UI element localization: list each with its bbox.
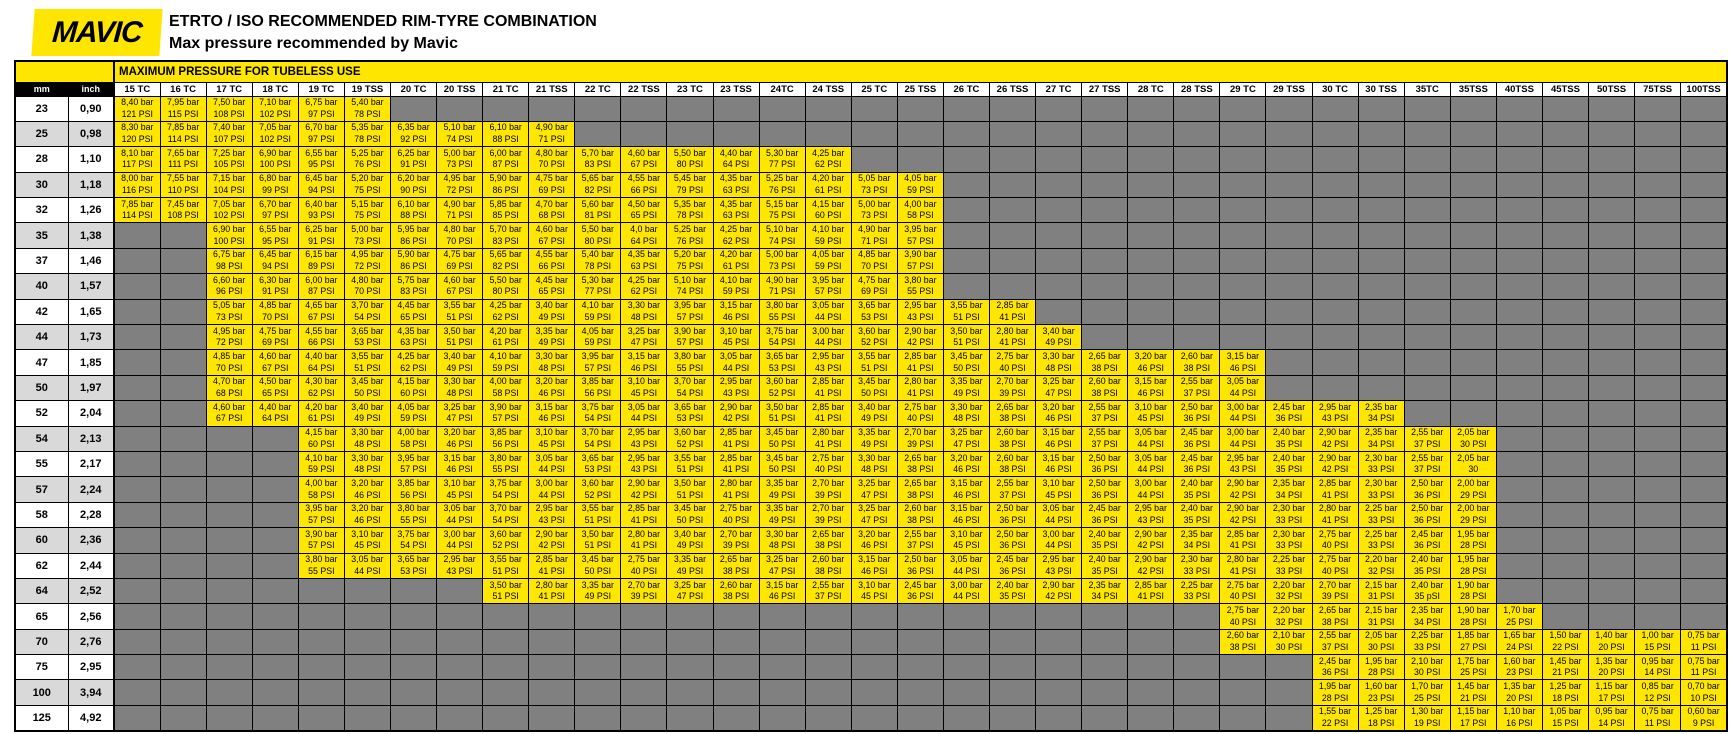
bar-value: 3,60 bar [483, 529, 528, 541]
psi-value: 46 PSI [345, 515, 390, 527]
pressure-cell: 3,25 bar47 PSI [851, 477, 897, 502]
psi-value: 44 PSI [944, 591, 989, 603]
psi-value: 74 PSI [760, 236, 805, 248]
psi-value: 55 PSI [898, 286, 943, 298]
empty-cell [1496, 248, 1542, 273]
empty-cell [1312, 375, 1358, 400]
pressure-cell: 6,00 bar87 PSI [298, 274, 344, 299]
empty-cell [160, 680, 206, 705]
bar-value: 3,90 bar [667, 326, 712, 338]
psi-value: 38 PSI [990, 413, 1035, 425]
pressure-cell: 2,15 bar31 PSI [1358, 604, 1404, 629]
pressure-cell: 4,25 bar62 PSI [805, 147, 851, 172]
bar-value: 3,05 bar [621, 402, 666, 414]
empty-cell [1358, 172, 1404, 197]
empty-cell [621, 680, 667, 705]
bar-value: 2,70 bar [806, 478, 851, 490]
pressure-cell: 2,85 bar41 PSI [897, 350, 943, 375]
empty-cell [713, 121, 759, 146]
pressure-cell: 2,85 bar41 PSI [805, 375, 851, 400]
empty-cell [1358, 96, 1404, 121]
bar-value: 3,15 bar [944, 503, 989, 515]
empty-cell [1128, 629, 1174, 654]
empty-cell [1589, 198, 1635, 223]
empty-cell [529, 604, 575, 629]
pressure-cell: 3,00 bar44 PSI [529, 477, 575, 502]
empty-cell [1542, 172, 1588, 197]
empty-cell [1220, 299, 1266, 324]
psi-value: 76 PSI [345, 159, 390, 171]
bar-value: 1,60 bar [1359, 681, 1404, 693]
psi-value: 96 PSI [207, 286, 252, 298]
pressure-cell: 3,80 bar55 PSI [483, 451, 529, 476]
empty-cell [483, 604, 529, 629]
empty-cell [160, 528, 206, 553]
pressure-cell: 2,60 bar38 PSI [805, 553, 851, 578]
row-label-inch: 1,46 [68, 248, 114, 273]
bar-value: 3,15 bar [714, 300, 759, 312]
bar-value: 2,95 bar [1128, 503, 1173, 515]
bar-value: 5,05 bar [852, 173, 897, 185]
empty-cell [1358, 147, 1404, 172]
pressure-cell: 3,05 bar44 PSI [805, 299, 851, 324]
pressure-cell: 3,60 bar52 PSI [759, 375, 805, 400]
pressure-cell: 4,10 bar59 PSI [483, 350, 529, 375]
pressure-cell: 4,60 bar67 PSI [252, 350, 298, 375]
empty-cell [1635, 578, 1681, 603]
empty-cell [1589, 553, 1635, 578]
psi-value: 48 PSI [437, 388, 482, 400]
pressure-cell: 3,15 bar46 PSI [437, 451, 483, 476]
bar-value: 8,40 bar [115, 97, 160, 109]
empty-cell [713, 680, 759, 705]
empty-cell [437, 96, 483, 121]
empty-cell [1174, 121, 1220, 146]
pressure-cell: 1,90 bar28 PSI [1450, 578, 1496, 603]
psi-value: 53 PSI [760, 363, 805, 375]
empty-cell [114, 401, 160, 426]
bar-value: 7,85 bar [115, 199, 160, 211]
empty-cell [160, 477, 206, 502]
psi-value: 14 PSI [1589, 718, 1634, 730]
empty-cell [1589, 578, 1635, 603]
pressure-cell: 4,35 bar63 PSI [713, 198, 759, 223]
bar-value: 6,75 bar [207, 249, 252, 261]
pressure-cell: 3,75 bar54 PSI [483, 477, 529, 502]
empty-cell [989, 248, 1035, 273]
pressure-cell: 3,90 bar57 PSI [483, 401, 529, 426]
bar-value: 2,90 bar [1128, 554, 1173, 566]
pressure-cell: 3,10 bar45 PSI [437, 477, 483, 502]
psi-value: 38 PSI [714, 566, 759, 578]
bar-value: 2,95 bar [714, 376, 759, 388]
empty-cell [1082, 121, 1128, 146]
pressure-cell: 4,75 bar69 PSI [437, 248, 483, 273]
pressure-cell: 4,90 bar71 PSI [529, 121, 575, 146]
pressure-cell: 2,95 bar43 PSI [621, 426, 667, 451]
bar-value: 2,25 bar [1405, 630, 1450, 642]
psi-value: 88 PSI [483, 134, 528, 146]
psi-value: 38 PSI [990, 464, 1035, 476]
pressure-cell: 4,20 bar61 PSI [483, 325, 529, 350]
psi-value: 63 PSI [391, 337, 436, 349]
bar-value: 2,40 bar [990, 580, 1035, 592]
pressure-cell: 2,30 bar33 PSI [1266, 528, 1312, 553]
pressure-cell: 2,55 bar37 PSI [1082, 426, 1128, 451]
empty-cell [1220, 198, 1266, 223]
psi-value: 42 PSI [1313, 464, 1358, 476]
psi-value: 45 PSI [852, 591, 897, 603]
pressure-cell: 4,90 bar71 PSI [851, 223, 897, 248]
bar-value: 3,20 bar [1036, 402, 1081, 414]
empty-cell [160, 705, 206, 730]
pressure-cell: 3,35 bar49 PSI [759, 502, 805, 527]
psi-value: 45 PSI [345, 540, 390, 552]
psi-value: 32 PSI [1359, 566, 1404, 578]
pressure-cell: 0,95 bar14 PSI [1635, 655, 1681, 680]
column-header: 28 TC [1128, 82, 1174, 96]
psi-value: 41 PSI [529, 591, 574, 603]
empty-cell [1128, 604, 1174, 629]
pressure-cell: 2,40 bar35 PSI [1174, 502, 1220, 527]
psi-value: 58 PSI [898, 210, 943, 222]
bar-value: 3,60 bar [575, 478, 620, 490]
empty-cell [1589, 274, 1635, 299]
psi-value: 77 PSI [760, 159, 805, 171]
psi-value: 38 PSI [898, 464, 943, 476]
pressure-cell: 6,40 bar93 PSI [298, 198, 344, 223]
psi-value: 64 PSI [621, 236, 666, 248]
pressure-cell: 3,80 bar55 PSI [298, 553, 344, 578]
empty-cell [390, 655, 436, 680]
psi-value: 91 PSI [253, 286, 298, 298]
table-row: 281,108,10 bar117 PSI7,65 bar111 PSI7,25… [15, 147, 1727, 172]
psi-value: 34 PSI [1359, 439, 1404, 451]
empty-cell [1450, 147, 1496, 172]
psi-value: 21 PSI [1451, 693, 1496, 705]
bar-value: 4,50 bar [253, 376, 298, 388]
pressure-cell: 2,85 bar41 PSI [529, 553, 575, 578]
pressure-cell: 2,60 bar38 PSI [1174, 350, 1220, 375]
empty-cell [759, 121, 805, 146]
bar-value: 2,60 bar [990, 427, 1035, 439]
pressure-cell: 3,80 bar55 PSI [390, 502, 436, 527]
empty-cell [667, 604, 713, 629]
bar-value: 1,50 bar [1543, 630, 1588, 642]
pressure-cell: 3,10 bar45 PSI [1036, 477, 1082, 502]
pressure-cell: 5,35 bar78 PSI [344, 121, 390, 146]
empty-cell [483, 680, 529, 705]
empty-cell [1589, 172, 1635, 197]
bar-value: 4,05 bar [575, 326, 620, 338]
psi-value: 81 PSI [575, 210, 620, 222]
title-block: ETRTO / ISO RECOMMENDED RIM-TYRE COMBINA… [169, 9, 597, 55]
bar-value: 3,45 bar [760, 453, 805, 465]
psi-value: 116 PSI [115, 185, 160, 197]
pressure-cell: 0,85 bar12 PSI [1635, 680, 1681, 705]
bar-value: 7,50 bar [207, 97, 252, 109]
pressure-cell: 4,60 bar67 PSI [437, 274, 483, 299]
pressure-cell: 4,60 bar67 PSI [529, 223, 575, 248]
psi-value: 57 PSI [483, 413, 528, 425]
psi-value: 65 PSI [391, 312, 436, 324]
psi-value: 54 PSI [760, 337, 805, 349]
psi-value: 57 PSI [299, 540, 344, 552]
pressure-cell: 2,40 bar35 PSI [1082, 553, 1128, 578]
bar-value: 3,30 bar [621, 300, 666, 312]
psi-value: 35 PSI [1174, 515, 1219, 527]
psi-value: 46 PSI [1220, 363, 1265, 375]
pressure-cell: 3,10 bar45 PSI [344, 528, 390, 553]
pressure-cell: 3,80 bar55 PSI [667, 350, 713, 375]
psi-value: 65 PSI [253, 388, 298, 400]
empty-cell [897, 121, 943, 146]
row-label-mm: 65 [15, 604, 68, 629]
psi-value: 42 PSI [529, 540, 574, 552]
pressure-cell: 2,80 bar41 PSI [713, 477, 759, 502]
psi-value: 15 PSI [1543, 718, 1588, 730]
pressure-cell: 2,45 bar36 PSI [1312, 655, 1358, 680]
column-header: 100TSS [1681, 82, 1727, 96]
psi-value: 44 PSI [1220, 388, 1265, 400]
empty-cell [1174, 96, 1220, 121]
pressure-cell: 3,20 bar46 PSI [1036, 401, 1082, 426]
psi-value: 62 PSI [806, 159, 851, 171]
empty-cell [1542, 553, 1588, 578]
bar-value: 6,45 bar [299, 173, 344, 185]
pressure-cell: 7,40 bar107 PSI [206, 121, 252, 146]
empty-cell [759, 655, 805, 680]
pressure-cell: 3,75 bar54 PSI [575, 401, 621, 426]
table-row: 441,734,95 bar72 PSI4,75 bar69 PSI4,55 b… [15, 325, 1727, 350]
empty-cell [1681, 604, 1727, 629]
pressure-cell: 2,90 bar42 PSI [1128, 528, 1174, 553]
psi-value: 82 PSI [575, 185, 620, 197]
pressure-cell: 2,65 bar38 PSI [713, 553, 759, 578]
bar-value: 3,15 bar [1036, 453, 1081, 465]
pressure-cell: 2,50 bar36 PSI [1404, 477, 1450, 502]
pressure-cell: 2,50 bar36 PSI [989, 528, 1035, 553]
psi-value: 53 PSI [391, 566, 436, 578]
pressure-cell: 2,25 bar33 PSI [1358, 528, 1404, 553]
pressure-cell: 5,10 bar74 PSI [437, 121, 483, 146]
psi-value: 29 PSI [1451, 515, 1496, 527]
pressure-cell: 4,05 bar59 PSI [575, 325, 621, 350]
pressure-cell: 4,40 bar64 PSI [298, 350, 344, 375]
psi-value: 46 PSI [621, 363, 666, 375]
pressure-cell: 6,70 bar97 PSI [298, 121, 344, 146]
psi-value: 49 PSI [345, 413, 390, 425]
psi-value: 40 PSI [714, 515, 759, 527]
empty-cell [1450, 299, 1496, 324]
empty-cell [851, 147, 897, 172]
bar-value: 3,15 bar [760, 580, 805, 592]
row-label-inch: 1,97 [68, 375, 114, 400]
bar-value: 3,60 bar [760, 376, 805, 388]
empty-cell [1404, 172, 1450, 197]
bar-value: 2,75 bar [990, 351, 1035, 363]
bar-value: 3,05 bar [1220, 376, 1265, 388]
bar-value: 3,10 bar [529, 427, 574, 439]
psi-value: 39 PSI [621, 591, 666, 603]
bar-value: 2,65 bar [990, 402, 1035, 414]
bar-value: 3,60 bar [852, 326, 897, 338]
pressure-cell: 8,40 bar121 PSI [114, 96, 160, 121]
psi-value: 57 PSI [667, 312, 712, 324]
bar-value: 3,75 bar [483, 478, 528, 490]
pressure-cell: 2,45 bar36 PSI [1404, 528, 1450, 553]
empty-cell [1496, 96, 1542, 121]
psi-value: 64 PSI [253, 413, 298, 425]
psi-value: 43 PSI [1128, 515, 1173, 527]
bar-value: 4,10 bar [575, 300, 620, 312]
psi-value: 44 PSI [345, 566, 390, 578]
bar-value: 4,55 bar [529, 249, 574, 261]
empty-cell [1635, 274, 1681, 299]
psi-value: 74 PSI [437, 134, 482, 146]
bar-value: 7,85 bar [161, 122, 206, 134]
psi-value: 67 PSI [299, 312, 344, 324]
bar-value: 3,85 bar [483, 427, 528, 439]
bar-value: 2,75 bar [898, 402, 943, 414]
pressure-cell: 2,70 bar39 PSI [805, 477, 851, 502]
column-header: 21 TSS [529, 82, 575, 96]
pressure-cell: 4,25 bar62 PSI [621, 274, 667, 299]
empty-cell [1542, 198, 1588, 223]
empty-cell [390, 96, 436, 121]
bar-value: 2,80 bar [898, 376, 943, 388]
empty-cell [298, 655, 344, 680]
pressure-cell: 2,90 bar42 PSI [1036, 578, 1082, 603]
pressure-cell: 2,40 bar35 PSI [1404, 553, 1450, 578]
pressure-cell: 2,10 bar30 PSI [1404, 655, 1450, 680]
pressure-cell: 1,15 bar17 PSI [1450, 705, 1496, 730]
psi-value: 79 PSI [667, 185, 712, 197]
bar-value: 3,45 bar [345, 376, 390, 388]
psi-value: 114 PSI [115, 210, 160, 222]
psi-value: 73 PSI [852, 185, 897, 197]
empty-cell [851, 604, 897, 629]
psi-value: 98 PSI [207, 261, 252, 273]
empty-cell [160, 299, 206, 324]
empty-cell [1681, 248, 1727, 273]
row-label-mm: 55 [15, 451, 68, 476]
bar-value: 3,35 bar [667, 554, 712, 566]
empty-cell [897, 705, 943, 730]
empty-cell [575, 604, 621, 629]
pressure-cell: 2,45 bar36 PSI [1174, 451, 1220, 476]
empty-cell [1496, 325, 1542, 350]
pressure-cell: 3,60 bar52 PSI [851, 325, 897, 350]
psi-value: 44 PSI [621, 413, 666, 425]
psi-value: 51 PSI [667, 490, 712, 502]
bar-value: 3,40 bar [852, 402, 897, 414]
empty-cell [805, 604, 851, 629]
psi-value: 97 PSI [299, 134, 344, 146]
pressure-cell: 3,95 bar57 PSI [390, 451, 436, 476]
psi-value: 44 PSI [944, 566, 989, 578]
bar-value: 4,45 bar [529, 275, 574, 287]
bar-value: 5,50 bar [575, 224, 620, 236]
psi-value: 59 PSI [714, 286, 759, 298]
pressure-cell: 5,40 bar78 PSI [344, 96, 390, 121]
pressure-cell: 2,55 bar37 PSI [1404, 426, 1450, 451]
psi-value: 35 PSI [1405, 566, 1450, 578]
pressure-cell: 1,90 bar28 PSI [1450, 604, 1496, 629]
psi-value: 93 PSI [299, 210, 344, 222]
bar-value: 2,80 bar [1220, 554, 1265, 566]
bar-value: 3,00 bar [1220, 427, 1265, 439]
bar-value: 2,95 bar [1036, 554, 1081, 566]
row-label-inch: 2,24 [68, 477, 114, 502]
empty-cell [1036, 198, 1082, 223]
empty-cell [1589, 604, 1635, 629]
psi-value: 37 PSI [1405, 439, 1450, 451]
bar-value: 0,85 bar [1635, 681, 1680, 693]
empty-cell [1496, 502, 1542, 527]
bar-value: 2,85 bar [714, 453, 759, 465]
psi-value: 50 PSI [852, 388, 897, 400]
psi-value: 36 PSI [898, 566, 943, 578]
pressure-cell: 4,20 bar61 PSI [805, 172, 851, 197]
banner-spacer [15, 61, 114, 82]
empty-cell [1589, 325, 1635, 350]
pressure-cell: 4,0 bar64 PSI [621, 223, 667, 248]
column-header: 27 TC [1036, 82, 1082, 96]
bar-value: 3,80 bar [760, 300, 805, 312]
empty-cell [160, 401, 206, 426]
pressure-cell: 2,60 bar38 PSI [989, 426, 1035, 451]
psi-value: 50 PSI [575, 566, 620, 578]
pressure-cell: 3,05 bar44 PSI [621, 401, 667, 426]
psi-value: 27 PSI [1451, 642, 1496, 654]
pressure-cell: 2,95 bar43 PSI [437, 553, 483, 578]
empty-cell [989, 655, 1035, 680]
bar-value: 3,20 bar [1128, 351, 1173, 363]
bar-value: 0,60 bar [1681, 706, 1726, 718]
psi-value: 74 PSI [667, 286, 712, 298]
empty-cell [943, 147, 989, 172]
psi-value: 30 [1451, 464, 1496, 476]
bar-value: 3,40 bar [667, 529, 712, 541]
bar-value: 3,55 bar [483, 554, 528, 566]
pressure-cell: 3,90 bar57 PSI [667, 325, 713, 350]
table-row: 501,974,70 bar68 PSI4,50 bar65 PSI4,30 b… [15, 375, 1727, 400]
empty-cell [1266, 96, 1312, 121]
bar-value: 5,05 bar [207, 300, 252, 312]
empty-cell [1312, 223, 1358, 248]
pressure-cell: 2,50 bar36 PSI [897, 553, 943, 578]
empty-cell [943, 274, 989, 299]
empty-cell [1174, 172, 1220, 197]
pressure-cell: 3,05 bar44 PSI [437, 502, 483, 527]
bar-value: 2,70 bar [621, 580, 666, 592]
empty-cell [206, 680, 252, 705]
column-header: 26 TSS [989, 82, 1035, 96]
empty-cell [575, 655, 621, 680]
bar-value: 2,60 bar [1082, 376, 1127, 388]
pressure-cell: 3,65 bar53 PSI [851, 299, 897, 324]
empty-cell [437, 578, 483, 603]
empty-cell [851, 629, 897, 654]
bar-value: 3,55 bar [852, 351, 897, 363]
empty-cell [298, 629, 344, 654]
pressure-cell: 4,05 bar59 PSI [897, 172, 943, 197]
pressure-cell: 4,00 bar58 PSI [390, 426, 436, 451]
bar-value: 2,55 bar [898, 529, 943, 541]
psi-value: 40 PSI [1313, 566, 1358, 578]
pressure-cell: 7,55 bar110 PSI [160, 172, 206, 197]
